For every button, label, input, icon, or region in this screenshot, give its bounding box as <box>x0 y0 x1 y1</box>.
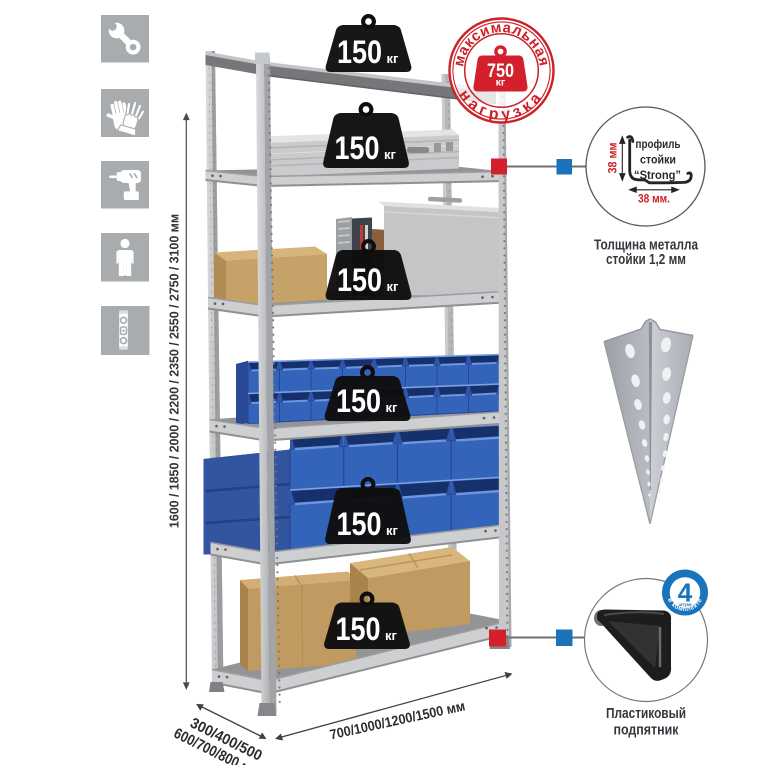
svg-text:150: 150 <box>337 34 382 70</box>
svg-text:38 мм: 38 мм <box>608 143 620 174</box>
svg-text:150: 150 <box>335 130 380 166</box>
svg-text:кг: кг <box>386 400 399 415</box>
svg-text:подпятник: подпятник <box>614 723 679 739</box>
svg-text:150: 150 <box>336 611 381 647</box>
svg-text:Пластиковый: Пластиковый <box>606 706 686 722</box>
svg-text:150: 150 <box>337 506 382 542</box>
svg-text:кг: кг <box>387 51 400 66</box>
svg-text:кг: кг <box>386 523 399 538</box>
svg-text:стойки 1,2 мм: стойки 1,2 мм <box>606 252 686 268</box>
svg-text:38 мм.: 38 мм. <box>638 194 670 206</box>
svg-text:150: 150 <box>337 262 382 298</box>
svg-text:1600 / 1850 / 2000 / 2200 / 23: 1600 / 1850 / 2000 / 2200 / 2350 / 2550 … <box>168 214 182 528</box>
svg-text:кг: кг <box>496 77 506 89</box>
svg-text:кг: кг <box>387 279 400 294</box>
svg-text:кг: кг <box>385 628 398 643</box>
svg-text:“Strong”: “Strong” <box>634 168 681 182</box>
svg-text:профиль: профиль <box>636 137 681 151</box>
svg-text:150: 150 <box>336 383 381 419</box>
svg-text:стойки: стойки <box>640 153 676 167</box>
svg-text:кг: кг <box>384 147 397 162</box>
